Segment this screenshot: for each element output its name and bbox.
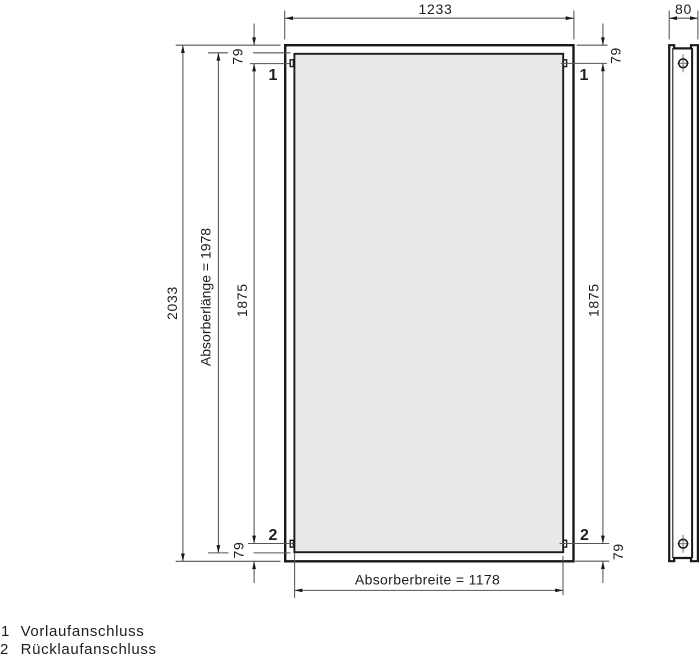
svg-text:79: 79 — [608, 47, 624, 64]
svg-text:1: 1 — [269, 67, 278, 84]
svg-text:Vorlaufanschluss: Vorlaufanschluss — [21, 623, 145, 640]
svg-text:1: 1 — [1, 623, 10, 640]
svg-text:1: 1 — [580, 67, 589, 84]
svg-text:2: 2 — [0, 641, 9, 658]
svg-text:Rücklaufanschluss: Rücklaufanschluss — [21, 641, 157, 658]
svg-text:2: 2 — [580, 527, 589, 544]
svg-text:Absorberbreite = 1178: Absorberbreite = 1178 — [355, 572, 500, 588]
svg-text:79: 79 — [230, 48, 246, 65]
svg-text:1233: 1233 — [419, 1, 453, 17]
svg-text:80: 80 — [675, 1, 692, 17]
svg-text:Absorberlänge = 1978: Absorberlänge = 1978 — [198, 228, 214, 366]
svg-text:1875: 1875 — [234, 283, 250, 317]
svg-text:79: 79 — [610, 543, 626, 560]
svg-text:2: 2 — [269, 527, 278, 544]
svg-text:2033: 2033 — [164, 286, 180, 320]
svg-text:79: 79 — [231, 542, 247, 559]
svg-text:1875: 1875 — [586, 283, 602, 317]
